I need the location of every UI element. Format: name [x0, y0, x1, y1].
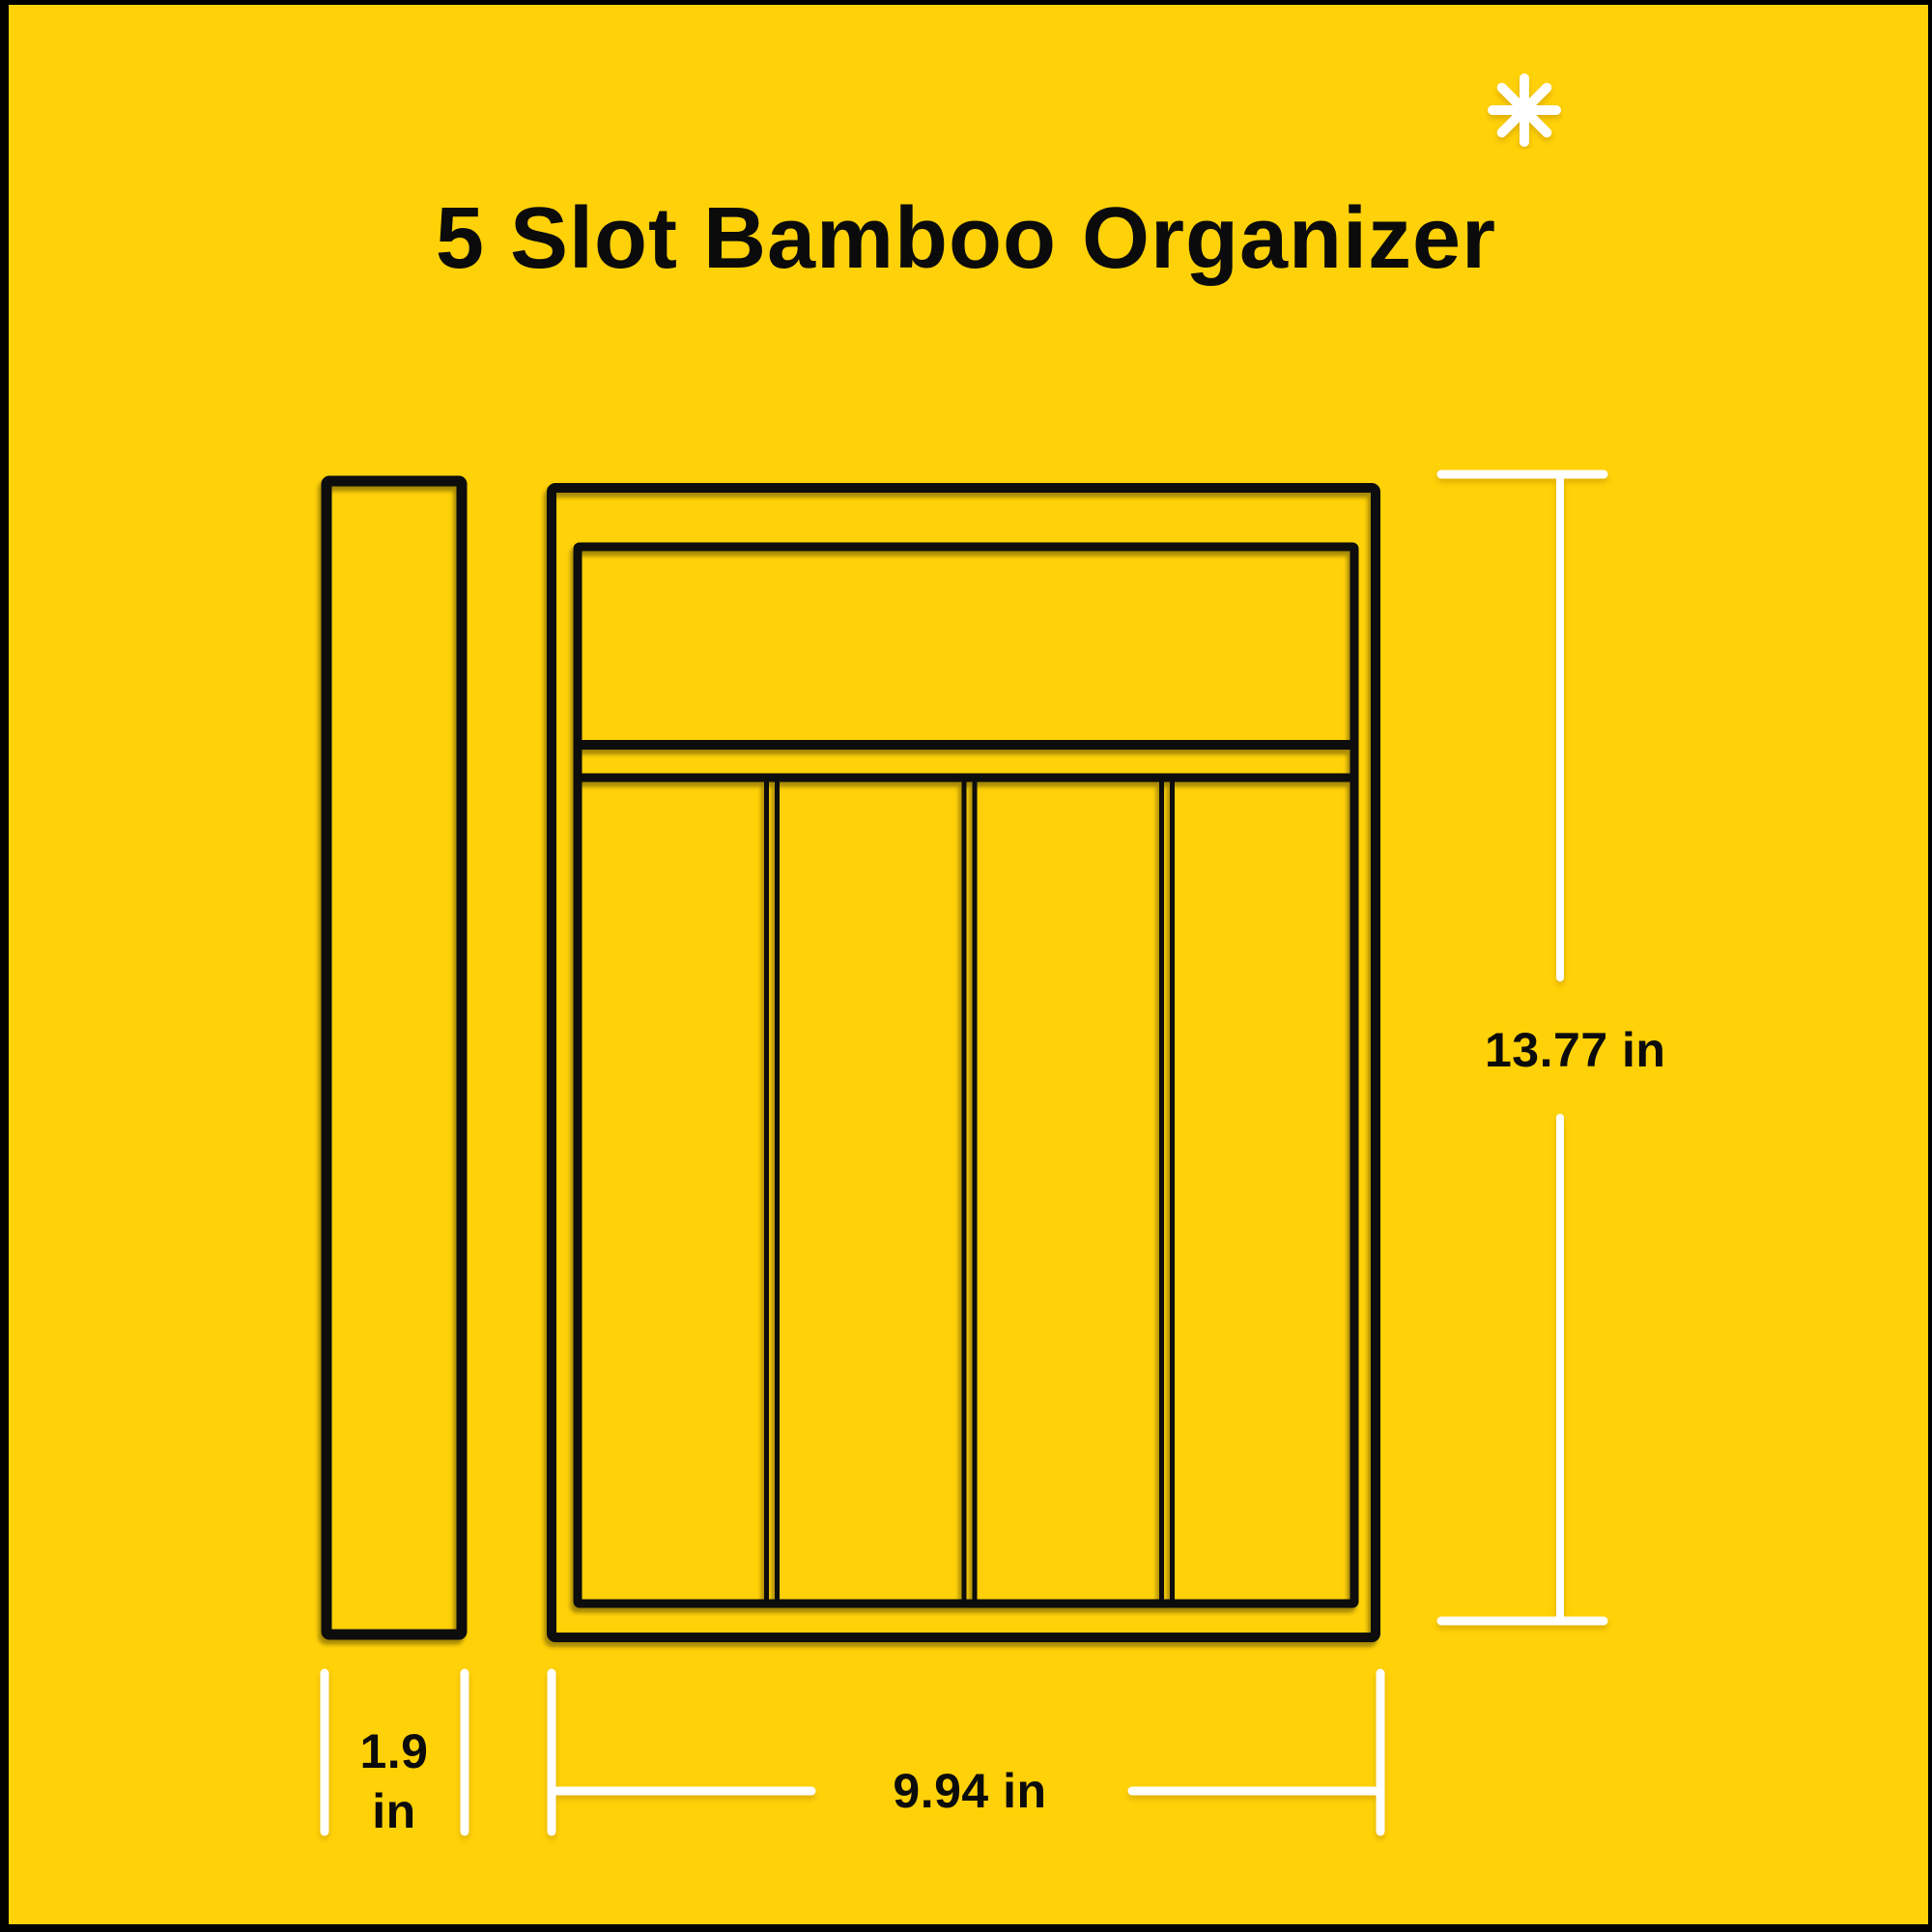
width-dimension-label: 9.94 in — [893, 1764, 1046, 1818]
frame-left — [0, 0, 9, 1932]
frame-bottom — [0, 1924, 1932, 1932]
diagram-canvas: 5 Slot Bamboo Organizer — [0, 0, 1932, 1932]
frame-top — [0, 0, 1932, 5]
asterisk-icon — [1492, 78, 1556, 142]
infographic-canvas: 5 Slot Bamboo Organizer — [0, 0, 1932, 1932]
height-dimension-label: 13.77 in — [1485, 1023, 1665, 1077]
frame-right — [1928, 0, 1932, 1932]
page-title: 5 Slot Bamboo Organizer — [436, 190, 1496, 287]
depth-dimension-label-unit: in — [372, 1784, 415, 1838]
depth-dimension-label-value: 1.9 — [359, 1724, 428, 1778]
